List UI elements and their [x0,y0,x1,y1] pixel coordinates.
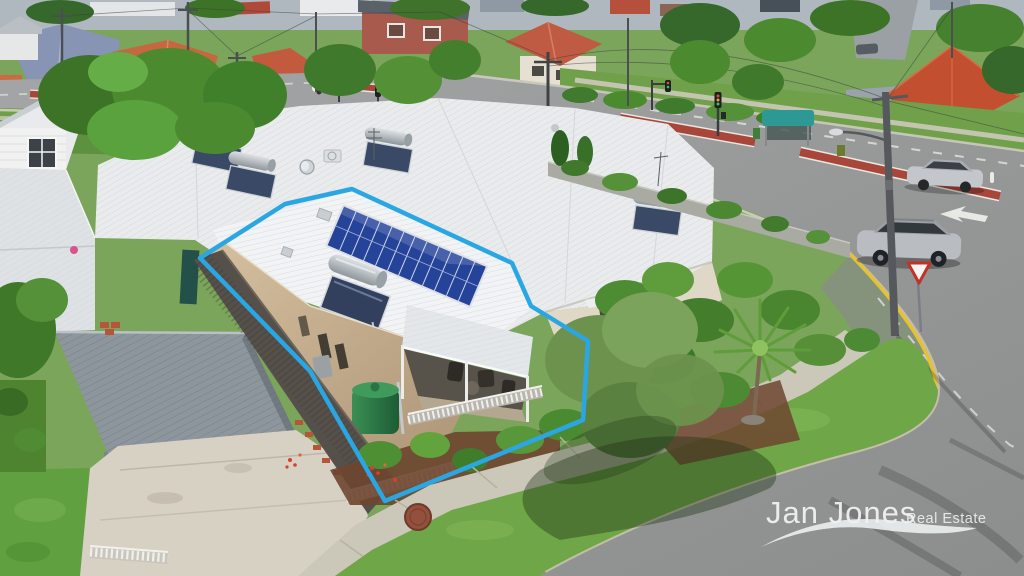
pink-chair [70,246,78,254]
satellite-dish [300,160,314,174]
wheelie-bin [753,128,760,139]
ac-unit [324,150,341,162]
wheelie-bin [837,145,845,156]
outdoor-chair [447,361,464,382]
rainwater-tank [352,382,403,434]
photo-canvas: Jan Jones Real Estate [0,0,1024,576]
outdoor-chair [477,369,494,387]
manhole-cover [405,504,431,530]
shade-cloth-fence [180,250,200,305]
front-lawn [0,468,90,576]
aerial-photo: Jan Jones Real Estate [0,0,1024,576]
